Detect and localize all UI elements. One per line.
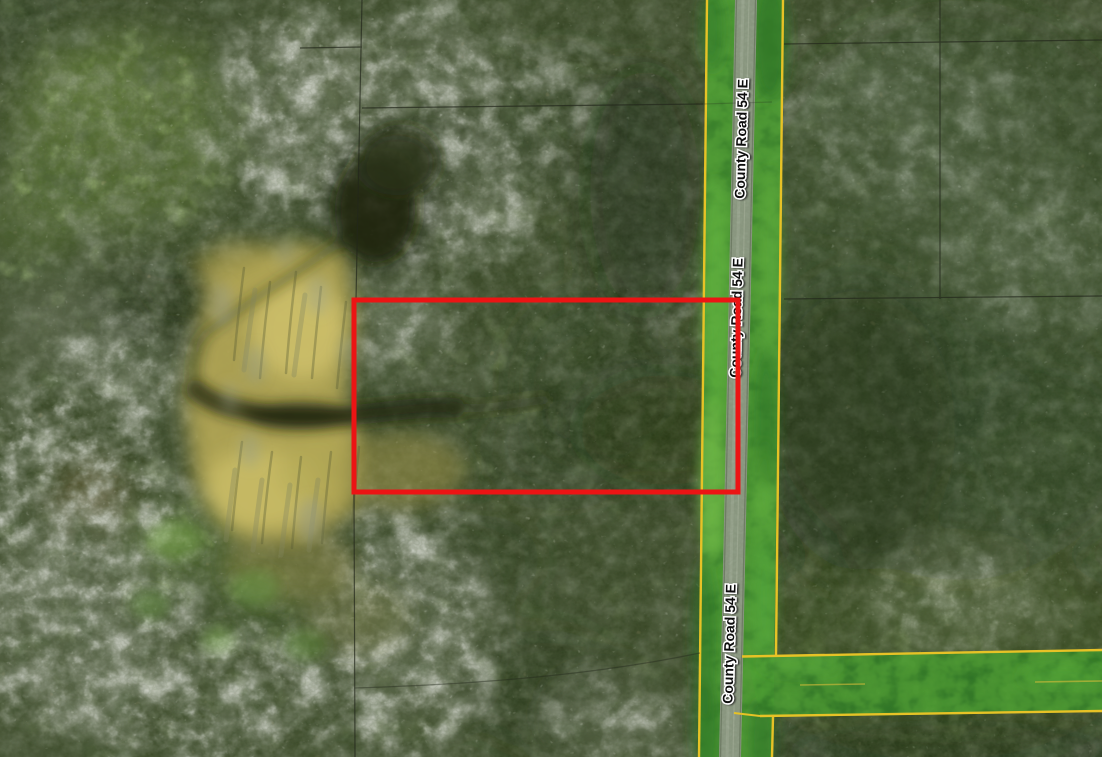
svg-text:County Road 54 E: County Road 54 E (719, 584, 738, 704)
svg-text:County Road 54 E: County Road 54 E (731, 79, 750, 199)
